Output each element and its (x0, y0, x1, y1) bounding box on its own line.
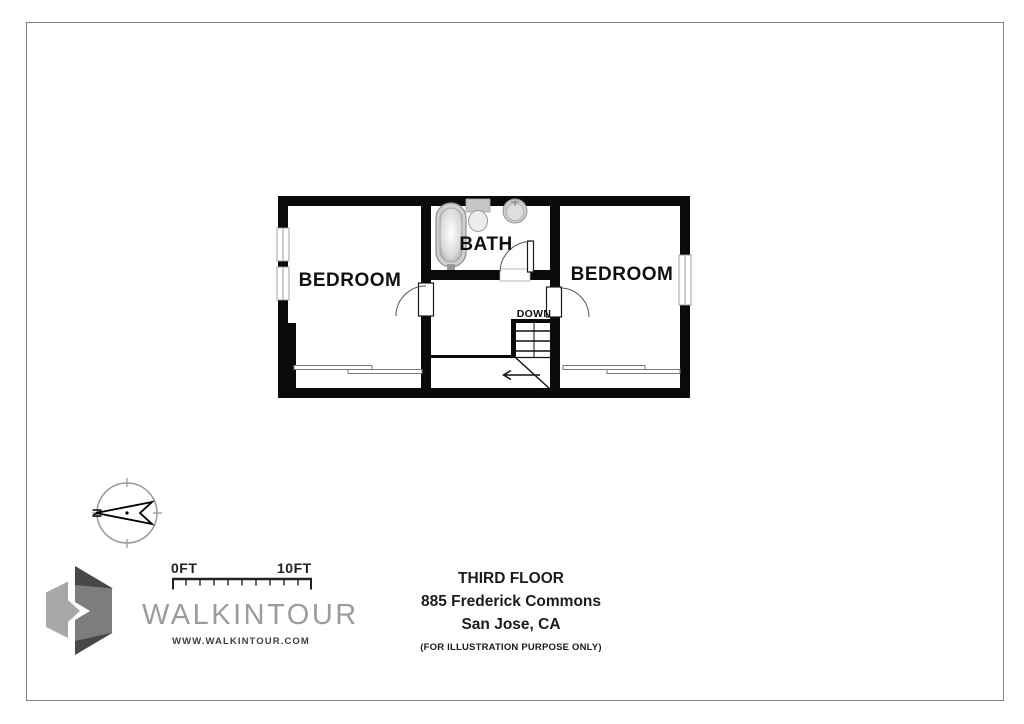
room-label-bedroom-left: BEDROOM (299, 270, 402, 291)
sink-basin (507, 204, 524, 221)
wall-bath-bottom-left (431, 270, 500, 280)
title-disclaimer: (FOR ILLUSTRATION PURPOSE ONLY) (361, 642, 661, 653)
brand-website: WWW.WALKINTOUR.COM (141, 636, 341, 647)
closet-right-panel-2 (607, 370, 680, 374)
scale-start-label: 0FT (171, 560, 197, 576)
wall-left-jog (288, 323, 296, 388)
title-floor-name: THIRD FLOOR (361, 570, 661, 588)
door-bath-threshold (500, 269, 530, 281)
room-label-bedroom-right: BEDROOM (571, 264, 674, 285)
room-label-bath: BATH (459, 234, 512, 255)
title-city: San Jose, CA (361, 616, 661, 634)
door-left-bedroom-leaf (419, 283, 434, 316)
wall-left-bedroom-lower (421, 316, 431, 388)
bathtub-faucet (447, 264, 455, 270)
wall-stair-side (511, 320, 516, 358)
closet-left-panel-2 (348, 370, 422, 374)
walkintour-logo-icon (46, 566, 113, 655)
wall-bottom (278, 388, 690, 398)
toilet-bowl (469, 211, 488, 232)
stairs-down-label: DOWN (517, 308, 551, 320)
scale-bar-ruler (172, 579, 312, 590)
scale-end-label: 10FT (277, 560, 312, 576)
compass-rose: N (90, 478, 163, 548)
scale-bar-ticks (186, 580, 298, 586)
staircase (504, 319, 553, 389)
brand-wordmark: WALKINTOUR (142, 599, 342, 632)
closet-right-panel-1 (563, 366, 645, 370)
wall-hall-divider (431, 355, 511, 358)
page-background: BEDROOM BATH BEDROOM DOWN N (0, 0, 1024, 724)
door-right-bedroom-swing (560, 288, 589, 317)
stair-break-line (516, 358, 550, 389)
closet-left-panel-1 (294, 366, 372, 370)
title-address: 885 Frederick Commons (361, 593, 661, 611)
wall-left-bedroom-upper (421, 206, 431, 283)
compass-center-dot (125, 511, 128, 514)
closet-doors (294, 366, 680, 374)
wall-right-bedroom-lower (550, 317, 560, 388)
door-bath-leaf (528, 241, 534, 272)
wall-bath-bottom-right (530, 270, 560, 280)
